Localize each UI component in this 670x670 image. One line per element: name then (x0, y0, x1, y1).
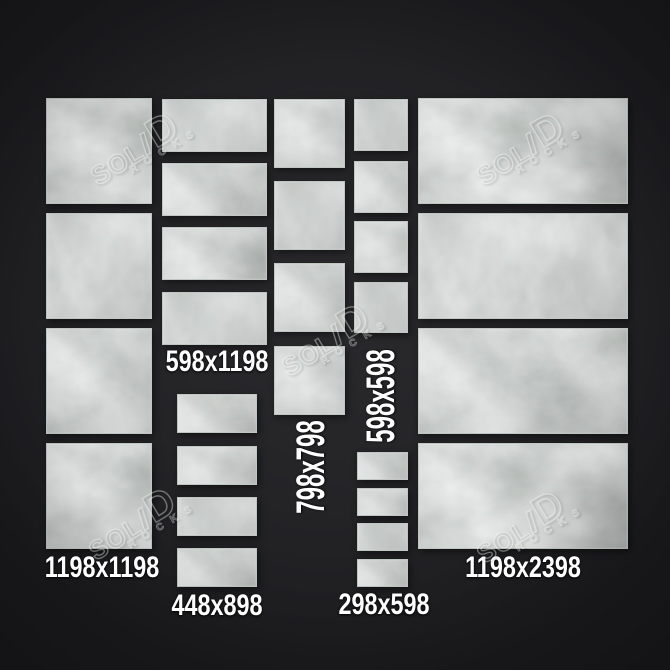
tile-sample-1198x2398 (418, 213, 628, 319)
tile-sample-598x1198 (162, 227, 267, 280)
tile-sample-298x598 (357, 523, 408, 551)
tile-sample-448x898 (177, 394, 257, 433)
tile-sample-448x898 (177, 497, 257, 536)
tile-sample-598x598 (354, 99, 408, 151)
tile-sample-448x898 (177, 548, 257, 587)
size-label-1198x2398: 1198x2398 (465, 553, 581, 583)
size-label-1198x1198: 1198x1198 (45, 553, 160, 583)
tile-sample-1198x1198 (46, 443, 152, 549)
tile-sample-598x1198 (162, 163, 267, 216)
tile-sample-598x1198 (162, 292, 267, 345)
tile-sample-798x798 (274, 99, 345, 168)
tile-sample-798x798 (274, 263, 345, 332)
tile-sample-298x598 (357, 488, 408, 516)
size-label-798x798: 798x798 (291, 420, 331, 513)
tile-sample-448x898 (177, 446, 257, 485)
tile-sample-598x598 (354, 221, 408, 273)
tile-sample-598x598 (354, 161, 408, 213)
tile-sample-598x1198 (162, 99, 267, 152)
tile-sample-1198x2398 (418, 98, 628, 204)
tile-sample-1198x1198 (46, 98, 152, 204)
size-label-598x598: 598x598 (361, 349, 401, 442)
tile-sample-1198x1198 (46, 213, 152, 319)
tile-sample-1198x1198 (46, 328, 152, 434)
size-label-298x598: 298x598 (338, 590, 429, 620)
size-label-598x1198: 598x1198 (166, 347, 269, 377)
tile-sample-298x598 (357, 559, 408, 587)
tile-sample-1198x2398 (418, 443, 628, 549)
tile-sample-598x598 (354, 282, 408, 333)
tile-size-preview-sheet: 1198x1198598x1198448x898798x798598x59829… (0, 0, 670, 670)
tile-sample-298x598 (357, 452, 408, 480)
size-label-448x898: 448x898 (171, 591, 262, 621)
tile-sample-798x798 (274, 346, 345, 415)
tile-sample-1198x2398 (418, 328, 628, 434)
tile-sample-798x798 (274, 181, 345, 250)
